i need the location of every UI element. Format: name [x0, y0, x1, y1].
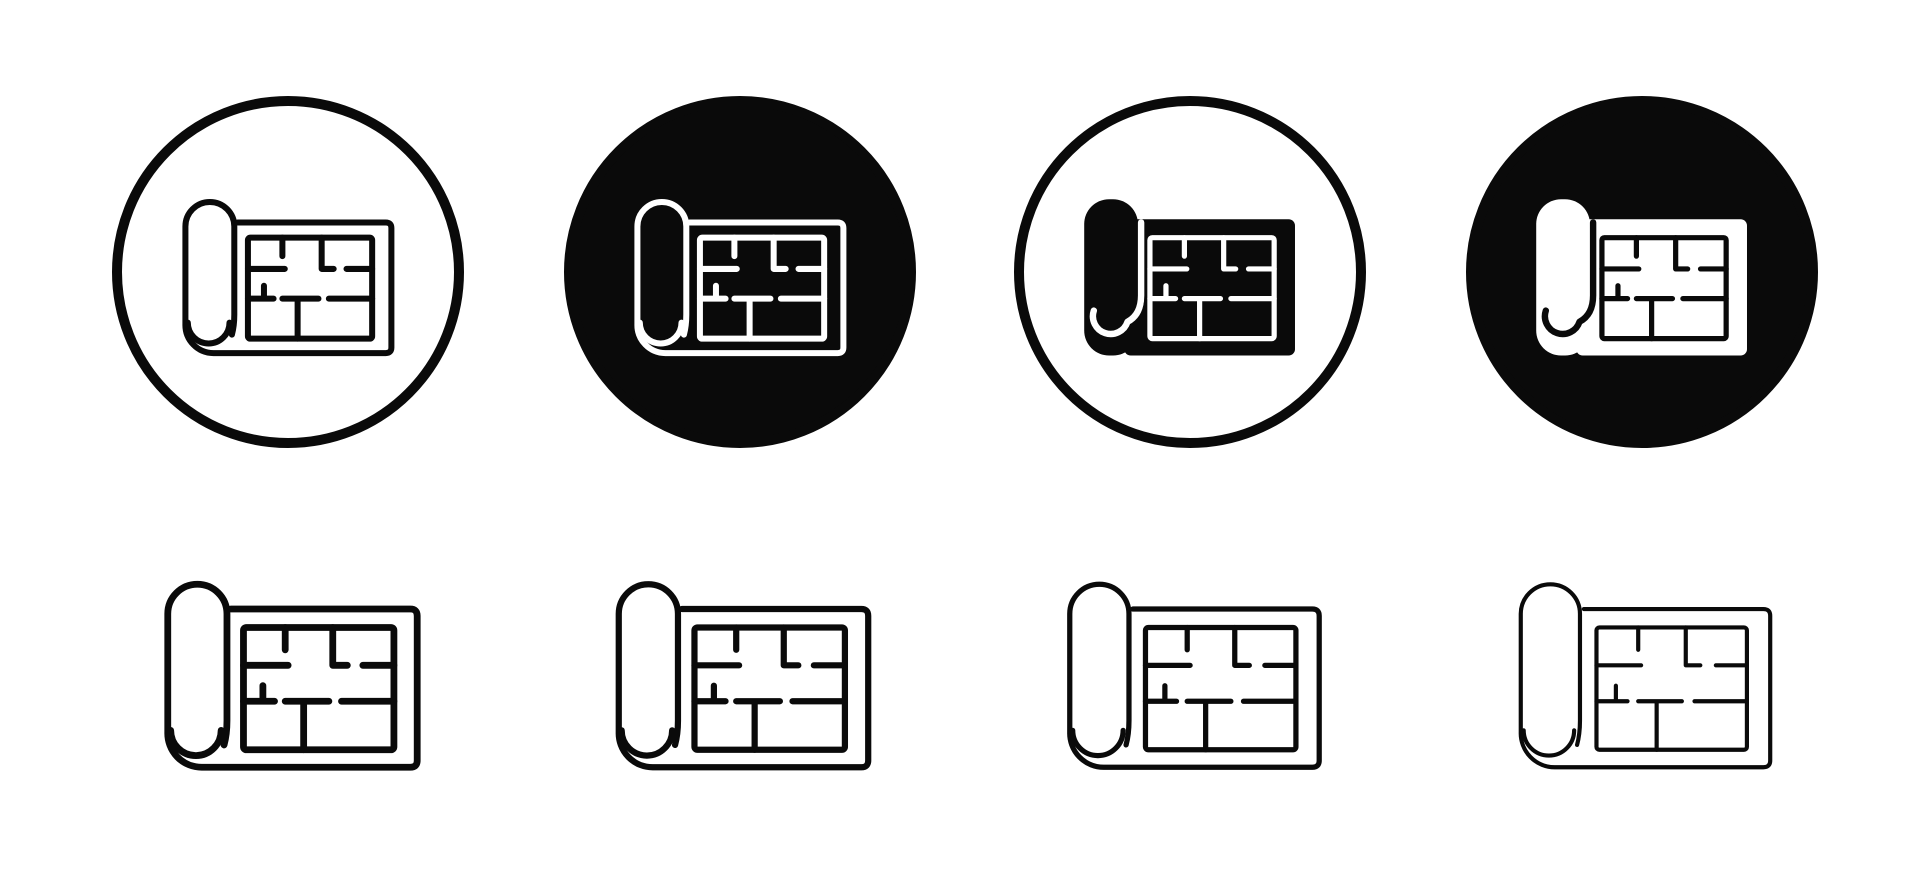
tile-circle-solid-light	[1014, 96, 1366, 448]
tile-line-light	[1062, 577, 1326, 775]
circle-badge	[1014, 96, 1366, 448]
tile-circle-line-light	[112, 96, 464, 448]
tile-circle-solid-dark	[1466, 96, 1818, 448]
blueprint-floor-plan-icon	[1513, 577, 1777, 775]
icon-set-sheet	[0, 0, 1920, 875]
circle-badge	[1466, 96, 1818, 448]
tile-circle-line-dark	[564, 96, 916, 448]
circle-badge	[112, 96, 464, 448]
blueprint-floor-plan-icon	[179, 196, 397, 360]
blueprint-floor-plan-icon	[611, 577, 875, 775]
tile-line-bold	[160, 577, 424, 775]
blueprint-floor-plan-icon	[1062, 577, 1326, 775]
blueprint-floor-plan-icon	[1081, 196, 1299, 360]
blueprint-floor-plan-icon	[160, 577, 424, 775]
blueprint-floor-plan-icon	[1533, 196, 1751, 360]
blueprint-floor-plan-icon	[631, 196, 849, 360]
tile-line-regular	[611, 577, 875, 775]
tile-line-thin	[1513, 577, 1777, 775]
circle-badge	[564, 96, 916, 448]
